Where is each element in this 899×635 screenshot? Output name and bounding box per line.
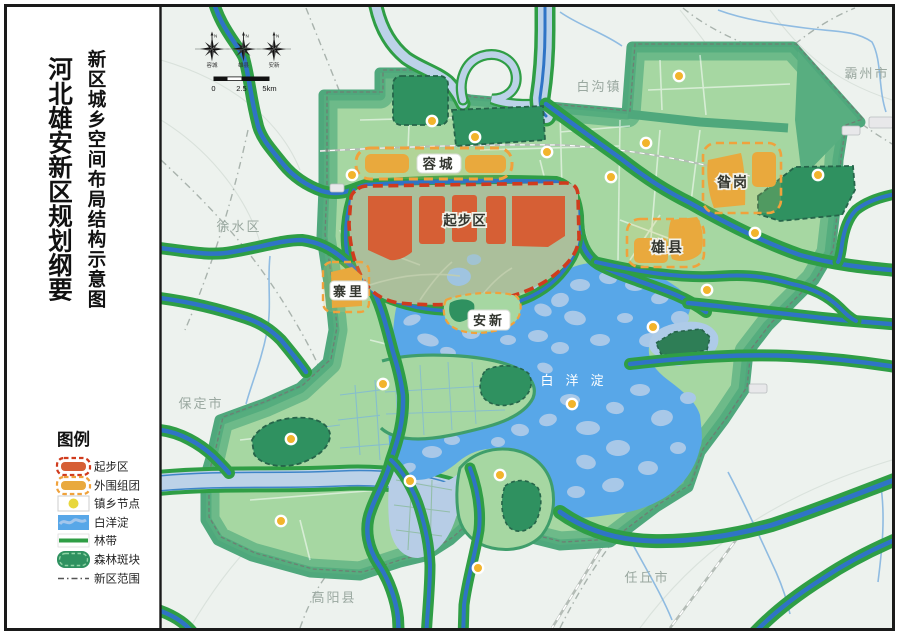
svg-text:新区城乡空间布局结构示意图: 新区城乡空间布局结构示意图 <box>88 49 107 310</box>
svg-text:寨里: 寨里 <box>332 284 365 299</box>
svg-text:霸州市: 霸州市 <box>844 66 889 81</box>
svg-text:镇乡节点: 镇乡节点 <box>94 497 140 511</box>
svg-text:新区范围: 新区范围 <box>94 572 140 586</box>
svg-text:河北雄安新区规划纲要: 河北雄安新区规划纲要 <box>47 56 73 305</box>
svg-text:任丘市: 任丘市 <box>624 570 669 585</box>
svg-text:雄县: 雄县 <box>238 61 250 69</box>
svg-text:白沟镇: 白沟镇 <box>576 79 621 94</box>
svg-text:保定市: 保定市 <box>178 396 223 411</box>
svg-text:安新: 安新 <box>268 61 280 69</box>
svg-text:安新: 安新 <box>473 313 505 328</box>
svg-text:图例: 图例 <box>57 429 90 449</box>
svg-text:白洋淀: 白洋淀 <box>94 516 129 530</box>
svg-text:容城: 容城 <box>422 156 456 172</box>
svg-text:昝岗: 昝岗 <box>717 174 749 190</box>
svg-text:白洋淀: 白洋淀 <box>540 373 615 388</box>
svg-text:徐水区: 徐水区 <box>216 219 261 234</box>
svg-text:容城: 容城 <box>206 61 218 69</box>
svg-text:5km: 5km <box>262 84 276 93</box>
svg-text:森林斑块: 森林斑块 <box>94 553 140 567</box>
svg-text:起步区: 起步区 <box>442 212 487 228</box>
svg-text:外围组团: 外围组团 <box>94 479 140 493</box>
svg-text:0: 0 <box>211 84 215 93</box>
svg-text:林带: 林带 <box>94 534 117 548</box>
svg-text:高阳县: 高阳县 <box>311 590 356 605</box>
svg-text:雄县: 雄县 <box>650 239 685 255</box>
svg-text:2.5: 2.5 <box>236 84 246 93</box>
svg-text:起步区: 起步区 <box>94 461 129 474</box>
